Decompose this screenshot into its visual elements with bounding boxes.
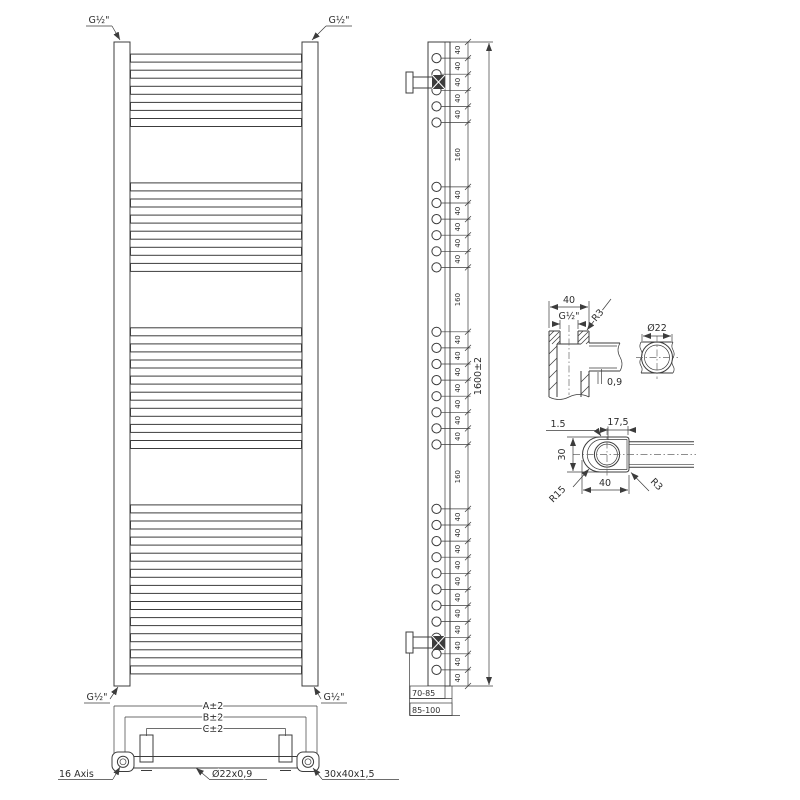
tube-end-circle bbox=[432, 649, 441, 658]
radiator-tube bbox=[131, 441, 302, 449]
chain-dim-label: 40 bbox=[454, 78, 462, 87]
connection-label: G½" bbox=[87, 692, 108, 703]
tube-wall-label: 0,9 bbox=[607, 377, 622, 388]
radiator-tube bbox=[131, 183, 302, 191]
radiator-tube bbox=[131, 618, 302, 626]
tube-end-circle bbox=[432, 247, 441, 256]
collector-end-left bbox=[112, 752, 134, 772]
chain-dim-label: 40 bbox=[454, 545, 462, 554]
left-rail bbox=[114, 42, 130, 686]
tube-end-circle bbox=[432, 601, 441, 610]
radiator-tube bbox=[131, 602, 302, 610]
detail-rail-profile-section: 1.5 17,5 30 R15 40 bbox=[546, 417, 696, 505]
profile-spec-callout: 30x40x1,5 bbox=[313, 768, 399, 780]
profile-back-radius-label: R3 bbox=[648, 476, 665, 493]
bracket-post-right bbox=[279, 735, 292, 762]
radiator-tube bbox=[131, 666, 302, 674]
radiator-tube bbox=[131, 634, 302, 642]
right-rail bbox=[302, 42, 318, 686]
tube-end-circle bbox=[432, 617, 441, 626]
chain-dim-label: 40 bbox=[454, 513, 462, 522]
tube-end-circle bbox=[432, 182, 441, 191]
tube-end-circle bbox=[432, 553, 441, 562]
radiator-tube bbox=[131, 263, 302, 271]
bracket-range-near-label: 70-85 bbox=[412, 689, 435, 698]
connection-callout-top-left: G½" bbox=[86, 15, 120, 40]
connection-callout-bottom-right: G½" bbox=[314, 687, 347, 703]
connection-label: G½" bbox=[324, 692, 345, 703]
chain-dim-label: 40 bbox=[454, 46, 462, 55]
tube-end-circle bbox=[432, 343, 441, 352]
tube-end-circle bbox=[432, 54, 441, 63]
radiator-tube bbox=[131, 505, 302, 513]
dimension-c-label: C±2 bbox=[203, 724, 224, 735]
chain-dim-label: 40 bbox=[454, 674, 462, 683]
chain-dim-label: 160 bbox=[454, 470, 462, 483]
chain-dim-label: 40 bbox=[454, 223, 462, 232]
bottom-view: A±2 B±2 C±2 bbox=[58, 701, 399, 780]
bracket-range-far-label: 85-100 bbox=[412, 706, 440, 715]
chain-dim-label: 40 bbox=[454, 239, 462, 248]
chain-dim-label: 40 bbox=[454, 400, 462, 409]
chain-dim-label: 40 bbox=[454, 561, 462, 570]
radiator-tube bbox=[131, 102, 302, 110]
chain-dim-label: 40 bbox=[454, 351, 462, 360]
bracket-distance-labels: 70-85 85-100 bbox=[410, 653, 461, 716]
front-tubes bbox=[131, 54, 302, 674]
front-view: G½" G½" G½" G½" bbox=[84, 15, 352, 703]
bottom-tube bbox=[128, 757, 303, 769]
cap-width-label: 40 bbox=[563, 295, 575, 306]
tube-end-circle bbox=[432, 520, 441, 529]
dimension-b-label: B±2 bbox=[203, 713, 224, 724]
radiator-tube bbox=[131, 328, 302, 336]
chain-dim-label: 40 bbox=[454, 641, 462, 650]
tube-end-circle bbox=[432, 198, 441, 207]
detail-tube-cross-section: Ø22 bbox=[636, 323, 678, 379]
tube-end-circle bbox=[432, 359, 441, 368]
chain-dim-label: 40 bbox=[454, 62, 462, 71]
technical-drawing-canvas: G½" G½" G½" G½" 40404040401604040404 bbox=[0, 0, 800, 800]
tube-end-circle bbox=[432, 392, 441, 401]
tube-end-circle bbox=[432, 215, 441, 224]
profile-wall-dimension: 1.5 bbox=[546, 419, 601, 436]
tube-end-circle bbox=[432, 408, 441, 417]
cap-radius-callout: R3 bbox=[587, 299, 611, 330]
radiator-tube bbox=[131, 650, 302, 658]
tube-end-circle bbox=[432, 231, 441, 240]
profile-wall-label: 1.5 bbox=[550, 419, 565, 430]
profile-front-radius-label: R15 bbox=[547, 484, 568, 505]
radiator-tube bbox=[131, 54, 302, 62]
tube-end-circle bbox=[432, 569, 441, 578]
chain-dim-label: 160 bbox=[454, 293, 462, 306]
radiator-tube bbox=[131, 231, 302, 239]
tube-end-circle bbox=[432, 504, 441, 513]
tube-end-circle bbox=[432, 118, 441, 127]
tube-end-circle bbox=[432, 585, 441, 594]
thread-label: G½" bbox=[559, 311, 580, 322]
chain-dim-label: 160 bbox=[454, 148, 462, 161]
chain-dim-label: 40 bbox=[454, 609, 462, 618]
tube-end-circle bbox=[432, 440, 441, 449]
tube-diameter-label: Ø22 bbox=[647, 323, 667, 334]
radiator-tube bbox=[131, 424, 302, 432]
overall-height-label: 1600±2 bbox=[473, 357, 484, 395]
tube-end-circle bbox=[432, 376, 441, 385]
radiator-tube bbox=[131, 360, 302, 368]
profile-front-radius-callout: R15 bbox=[547, 469, 589, 505]
chain-dim-label: 40 bbox=[454, 335, 462, 344]
radiator-tube bbox=[131, 521, 302, 529]
profile-width-label: 40 bbox=[599, 478, 611, 489]
tube-spec-callout: Ø22x0,9 bbox=[196, 768, 267, 780]
dimension-a-label: A±2 bbox=[203, 701, 224, 712]
radiator-tube bbox=[131, 376, 302, 384]
tube-offset-label: 17,5 bbox=[607, 417, 628, 428]
connection-label: G½" bbox=[89, 15, 110, 26]
cap-radius-label: R3 bbox=[590, 307, 607, 324]
axis-callout: 16 Axis bbox=[58, 767, 120, 780]
axis-label: 16 Axis bbox=[59, 769, 94, 780]
chain-dim-label: 40 bbox=[454, 657, 462, 666]
collector-end-right bbox=[297, 752, 319, 772]
radiator-tube bbox=[131, 215, 302, 223]
dimension-c: C±2 bbox=[147, 724, 286, 736]
tube-wall-callout: 0,9 bbox=[598, 369, 622, 388]
chain-dim-label: 40 bbox=[454, 432, 462, 441]
connection-label: G½" bbox=[329, 15, 350, 26]
chain-dim-label: 40 bbox=[454, 529, 462, 538]
radiator-tube bbox=[131, 119, 302, 127]
connection-callout-top-right: G½" bbox=[312, 15, 352, 40]
side-tube-ends bbox=[432, 54, 471, 675]
profile-back-radius-callout: R3 bbox=[631, 473, 665, 494]
tube-end-circle bbox=[432, 537, 441, 546]
chain-dim-label: 40 bbox=[454, 384, 462, 393]
detail-collector-top-section: 40 G½" R3 0,9 bbox=[549, 295, 622, 400]
chain-dim-label: 40 bbox=[454, 625, 462, 634]
radiator-tube bbox=[131, 585, 302, 593]
connection-callout-bottom-left: G½" bbox=[84, 687, 118, 703]
tube-end-circle bbox=[432, 102, 441, 111]
radiator-tube bbox=[131, 86, 302, 94]
radiator-tube bbox=[131, 408, 302, 416]
chain-dim-label: 40 bbox=[454, 577, 462, 586]
radiator-tube bbox=[131, 553, 302, 561]
radiator-tube bbox=[131, 199, 302, 207]
profile-spec-label: 30x40x1,5 bbox=[324, 769, 375, 780]
side-view: 4040404040160404040404016040404040404040… bbox=[406, 39, 493, 716]
chain-dim-label: 40 bbox=[454, 416, 462, 425]
tube-end-circle bbox=[432, 424, 441, 433]
chain-dim-label: 40 bbox=[454, 255, 462, 264]
bracket-post-left bbox=[140, 735, 153, 762]
tube-end-circle bbox=[432, 327, 441, 336]
tube-end-circle bbox=[432, 665, 441, 674]
radiator-tube bbox=[131, 537, 302, 545]
chain-dim-label: 40 bbox=[454, 94, 462, 103]
tube-spec-label: Ø22x0,9 bbox=[212, 769, 252, 780]
tube-end-circle bbox=[432, 263, 441, 272]
radiator-tube bbox=[131, 344, 302, 352]
chain-dim-label: 40 bbox=[454, 593, 462, 602]
radiator-tube bbox=[131, 70, 302, 78]
chain-dim-label: 40 bbox=[454, 110, 462, 119]
chain-dim-label: 40 bbox=[454, 190, 462, 199]
tube-stub bbox=[589, 343, 622, 371]
chain-dim-label: 40 bbox=[454, 207, 462, 216]
profile-depth-label: 30 bbox=[557, 448, 568, 460]
radiator-tube bbox=[131, 569, 302, 577]
chain-dim-label: 40 bbox=[454, 368, 462, 377]
radiator-tube bbox=[131, 247, 302, 255]
radiator-tube bbox=[131, 392, 302, 400]
